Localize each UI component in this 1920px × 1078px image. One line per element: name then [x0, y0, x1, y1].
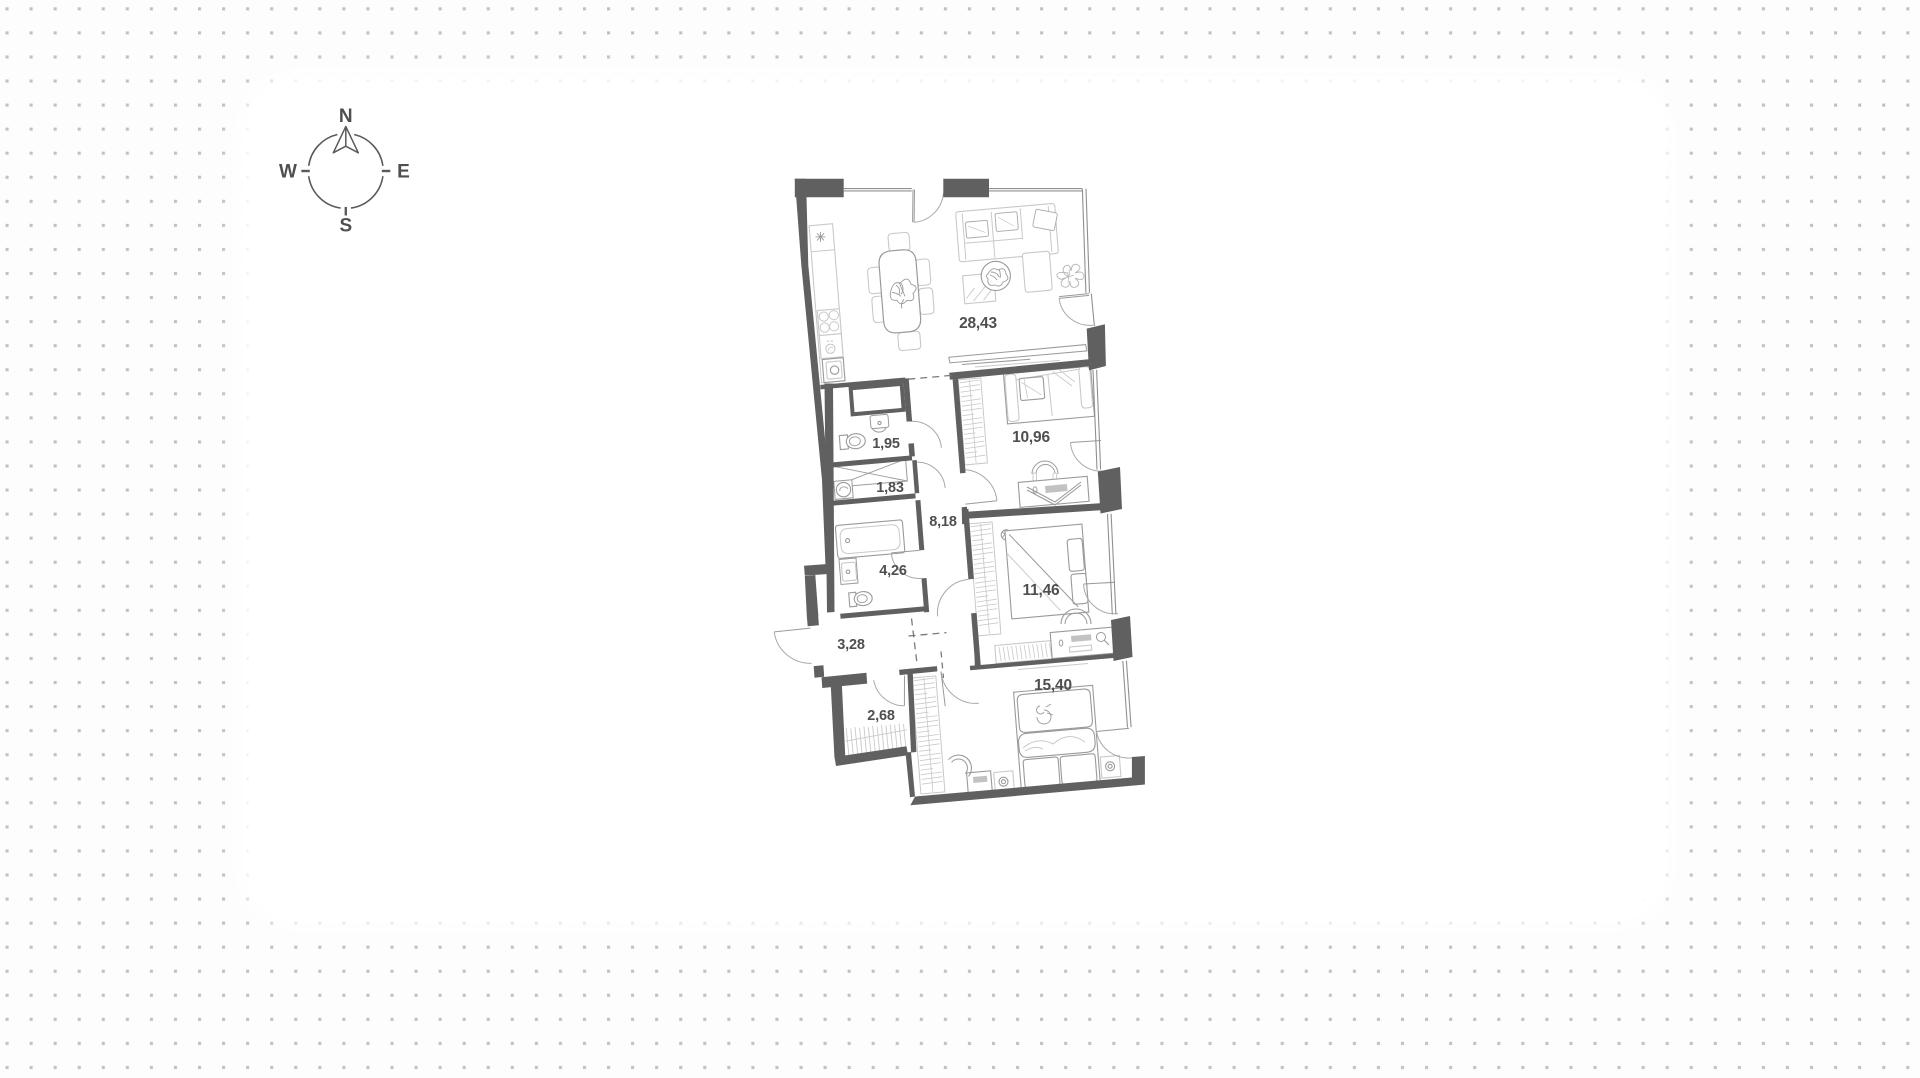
svg-text:1,95: 1,95	[872, 436, 900, 452]
svg-text:1,83: 1,83	[876, 480, 904, 496]
svg-text:11,46: 11,46	[1023, 582, 1061, 599]
svg-text:S: S	[339, 216, 352, 237]
svg-text:15,40: 15,40	[1034, 677, 1072, 694]
svg-text:28,43: 28,43	[959, 315, 997, 332]
svg-text:N: N	[339, 106, 353, 127]
svg-text:2,68: 2,68	[867, 708, 895, 724]
svg-text:E: E	[397, 162, 410, 183]
svg-text:8,18: 8,18	[929, 514, 957, 530]
svg-text:4,26: 4,26	[879, 563, 907, 579]
svg-text:10,96: 10,96	[1012, 429, 1050, 446]
svg-text:W: W	[279, 162, 297, 183]
svg-text:3,28: 3,28	[837, 637, 865, 653]
